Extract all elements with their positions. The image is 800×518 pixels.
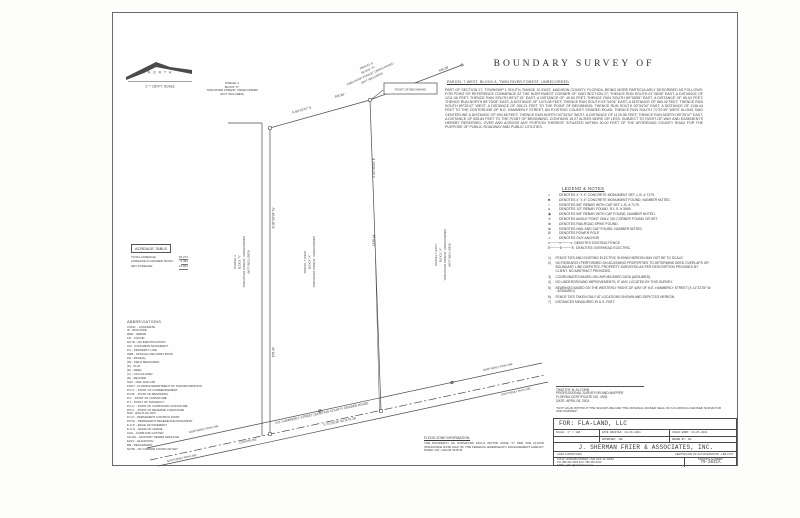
page-title: BOUNDARY SURVEY OF: [445, 59, 703, 69]
date-drafted-cell: DATE DRAFTED: 04-06-2001: [600, 430, 670, 436]
north-boundary-bearing: N 89°25'47" E: [292, 105, 312, 114]
acreage-row-label: NET ACREAGE:: [131, 265, 153, 270]
note-item-n: 6): [548, 296, 554, 300]
parcel-3-label: PARCEL 3 BLOCK "K" TWIN RIVER FOREST, UN…: [233, 236, 251, 288]
title-block: FOR: FLA-LAND, LLC SCALE: 1" = 100' DATE…: [553, 418, 737, 466]
approved-cell: APPROVED: JSF: [600, 437, 670, 442]
parcel-3-line2: BLOCK "K": [238, 255, 242, 270]
note-item-text: BEARINGS BASED ON THE WESTERLY RIGHT-OF-…: [556, 287, 712, 295]
legend-heading: LEGEND & NOTES: [562, 186, 714, 191]
parcel-7e-line2: BLOCK "A": [439, 248, 443, 263]
note-item-text: NO UNDERGROUND IMPROVEMENTS, IF ANY, LOC…: [556, 281, 712, 285]
client-name: FOR: FLA-LAND, LLC: [557, 419, 736, 429]
east-boundary-distance: 1138.44': [372, 234, 376, 246]
parcel-2-line4: (NOT INCLUDED): [203, 93, 261, 97]
note-item-n: 5): [548, 287, 554, 295]
certification-date: DATE: APRIL 05, 2001: [556, 400, 736, 404]
note-item-text: FENCE TIES AND EXISTING ELECTRIC SHOWN H…: [556, 257, 712, 261]
parcel-7w-line2: BLOCK "A": [308, 255, 312, 270]
company-name: J. SHERMAN FRIER & ASSOCIATES, INC.: [554, 443, 736, 452]
southerly-rw-label: SOUTHERLY R/W LINE: [167, 453, 197, 463]
centerline-label: CENTERLINE: [239, 437, 257, 445]
pob-leader-line: [372, 90, 383, 99]
pob-label: POINT OF BEGINNING: [395, 87, 427, 91]
note-item-text: DISTANCES MEASURED IN U.S. FEET.: [556, 301, 712, 305]
drawing-number-value: 79-2031A: [685, 461, 736, 466]
note-item: 5)BEARINGS BASED ON THE WESTERLY RIGHT-O…: [548, 287, 711, 295]
abbreviations-list: CONC. - CONCRETEIP - IRON PIPEREB. - REB…: [127, 326, 239, 453]
legend-item: ⊥DENOTES GUY ANCHOR: [548, 237, 714, 241]
flood-zone-text: THE PROPERTY AS SURVEYED FALLS WITHIN ZO…: [424, 442, 544, 453]
north-boundary-line: [268, 100, 370, 129]
company-email: EMAIL: jsfrier@windstream.net: [557, 464, 684, 467]
monument-ne-corner: [369, 99, 372, 102]
note-item: 6)FENCE TIES TAKEN ONLY AT LOCATIONS SHO…: [548, 296, 711, 300]
pob-callout: POINT OF BEGINNING: [372, 83, 437, 99]
note-item: 3)COORDINATES BASED ON UNPUBLISHED DATA …: [548, 276, 711, 280]
north-boundary-distance: 635.84': [334, 92, 345, 99]
abbreviations-heading: ABBREVIATIONS: [127, 320, 239, 324]
west-boundary-bearing: N 00°34'04" W: [272, 208, 276, 229]
legend-item-sym: E────E────E: [548, 247, 574, 251]
legend-section: LEGEND & NOTES □DENOTES 4" X 4" CONCRETE…: [548, 186, 714, 252]
scanned-survey-page: N O R T H 1" = 100 FT. SCALE: [0, 0, 800, 518]
note-item: 1)FENCE TIES AND EXISTING ELECTRIC SHOWN…: [548, 257, 711, 261]
note-item: 2)NO RESEARCH PERFORMED ON ADJOINING PRO…: [548, 262, 711, 273]
southerly-rw-label-east: SOUTHERLY R/W LINE: [501, 386, 531, 396]
notes-section: 1)FENCE TIES AND EXISTING ELECTRIC SHOWN…: [548, 257, 711, 307]
east-boundary-bearing: S 00°34'04" E: [372, 158, 376, 178]
drawn-by-cell: DRAWN BY: RA: [670, 437, 736, 442]
parcel-2-label: PARCEL 2 BLOCK "K" TWIN RIVER FOREST, UN…: [203, 82, 261, 96]
flood-zone-heading: FLOOD ZONE INFORMATION:: [424, 436, 544, 440]
north-arrow-label: N O R T H: [148, 70, 173, 74]
legend-item-text: DENOTES OVERHEAD ELECTRIC.: [576, 247, 714, 251]
monument-se-corner: [380, 410, 383, 413]
company-contact: 106 W. HOWARD STREET, LIVE OAK, FL 32064…: [554, 458, 684, 467]
flood-zone-section: FLOOD ZONE INFORMATION: THE PROPERTY AS …: [424, 436, 544, 453]
legend-item: E────E────EDENOTES OVERHEAD ELECTRIC.: [548, 247, 714, 251]
note-item-n: 7): [548, 301, 554, 305]
parcel-3-line1: PARCEL 3: [233, 255, 237, 269]
authorization-label: CERTIFICATE OF AUTHORIZATION - LB# 7179: [675, 452, 736, 457]
drawing-number-cell: DRAWING NUMBER: 79-2031A: [684, 458, 736, 467]
parcel-7w-line1: PARCEL 7 WEST: [303, 250, 307, 273]
acreage-heading: ACREAGE TABLE: [131, 244, 171, 253]
parcel-3-line3: TWIN RIVER FOREST, UNRECORDED: [242, 236, 246, 288]
trade-label: LAND SURVEYORS: [554, 452, 582, 457]
note-item-n: 2): [548, 262, 554, 273]
survey-subtitle: PARCEL 7 WEST, BLOCK A, TWIN RIVER FORES…: [447, 80, 569, 84]
abbreviation-item: NOTE - NO CORNER FOUND OR SET: [127, 448, 239, 452]
west-boundary-distance: 678.44': [272, 346, 276, 357]
notes-list: 1)FENCE TIES AND EXISTING ELECTRIC SHOWN…: [548, 257, 711, 305]
signature-line: [556, 386, 644, 387]
abbreviations-section: ABBREVIATIONS CONC. - CONCRETEIP - IRON …: [127, 320, 239, 452]
street-name-label: N.E. HAMMERLY STREET (EXISTING COUNTY GR…: [275, 401, 369, 425]
note-item: 7)DISTANCES MEASURED IN U.S. FEET.: [548, 301, 711, 305]
note-item: 4)NO UNDERGROUND IMPROVEMENTS, IF ANY, L…: [548, 281, 711, 285]
note-item-n: 3): [548, 276, 554, 280]
parcel-7e-line4: (NOT INCLUDED): [448, 243, 452, 267]
note-item-n: 1): [548, 257, 554, 261]
acreage-row: NET ACREAGE:14.82±: [131, 265, 188, 270]
legend-list: □DENOTES 4" X 4" CONCRETE MONUMENT SET, …: [548, 194, 714, 251]
street-bearing-label: S 71°20'39" W 1176.36': [323, 416, 357, 427]
north-arrow: N O R T H 1" = 100 FT. SCALE: [126, 62, 192, 89]
scale-cell: SCALE: 1" = 100': [554, 430, 600, 436]
note-item-text: NO RESEARCH PERFORMED ON ADJOINING PROPE…: [556, 262, 712, 273]
monument-sw-corner: [269, 433, 272, 436]
dimension-labels: N 89°25'47" E 635.84' 435.38' S 00°34'04…: [272, 65, 450, 357]
parcel-7w-line3: TWIN RIVER FOREST, UNRECORDED: [312, 236, 316, 288]
note-item-text: COORDINATES BASED ON UNPUBLISHED DATA (A…: [556, 276, 712, 280]
boundary-lines: [228, 65, 462, 436]
parcel-7-east-label: PARCEL 7 EAST BLOCK "A" TWIN RIVER FORES…: [434, 229, 452, 281]
legal-description: PART OF SECTION 27, TOWNSHIP 1 SOUTH, RA…: [445, 88, 703, 129]
parcel-7e-line3: TWIN RIVER FOREST, UNRECORDED: [443, 229, 447, 281]
field-work-cell: FIELD WORK: 04-05-2001: [670, 430, 736, 436]
acreage-row-value: 14.82±: [179, 265, 188, 270]
acreage-rows: TOTAL ACREAGE:15.27±ACREAGE IN GRADED RO…: [131, 256, 191, 270]
note-item-n: 4): [548, 281, 554, 285]
scale-label: 1" = 100 FT. SCALE: [145, 85, 175, 89]
certification-block: TIMOTHY B. ALCORN PROFESSIONAL SURVEYOR …: [556, 386, 736, 414]
east-boundary-line: [370, 100, 381, 411]
parcel-7-west-label: PARCEL 7 WEST BLOCK "A" TWIN RIVER FORES…: [303, 236, 316, 288]
parcel-3-line4: (NOT INCLUDED): [247, 250, 251, 274]
note-item-text: FENCE TIES TAKEN ONLY AT LOCATIONS SHOWN…: [556, 296, 712, 300]
fence-line: [376, 260, 380, 412]
northerly-rw-label-east: NORTHERLY R/W LINE: [483, 362, 513, 372]
blank-cell: [554, 437, 600, 442]
parcel-7e-line1: PARCEL 7 EAST: [434, 244, 438, 266]
acreage-table: ACREAGE TABLE TOTAL ACREAGE:15.27±ACREAG…: [131, 237, 191, 270]
monument-nw-corner: [269, 127, 272, 130]
seal-disclaimer: "NOT VALID WITHOUT THE SIGNATURE AND THE…: [556, 407, 726, 414]
